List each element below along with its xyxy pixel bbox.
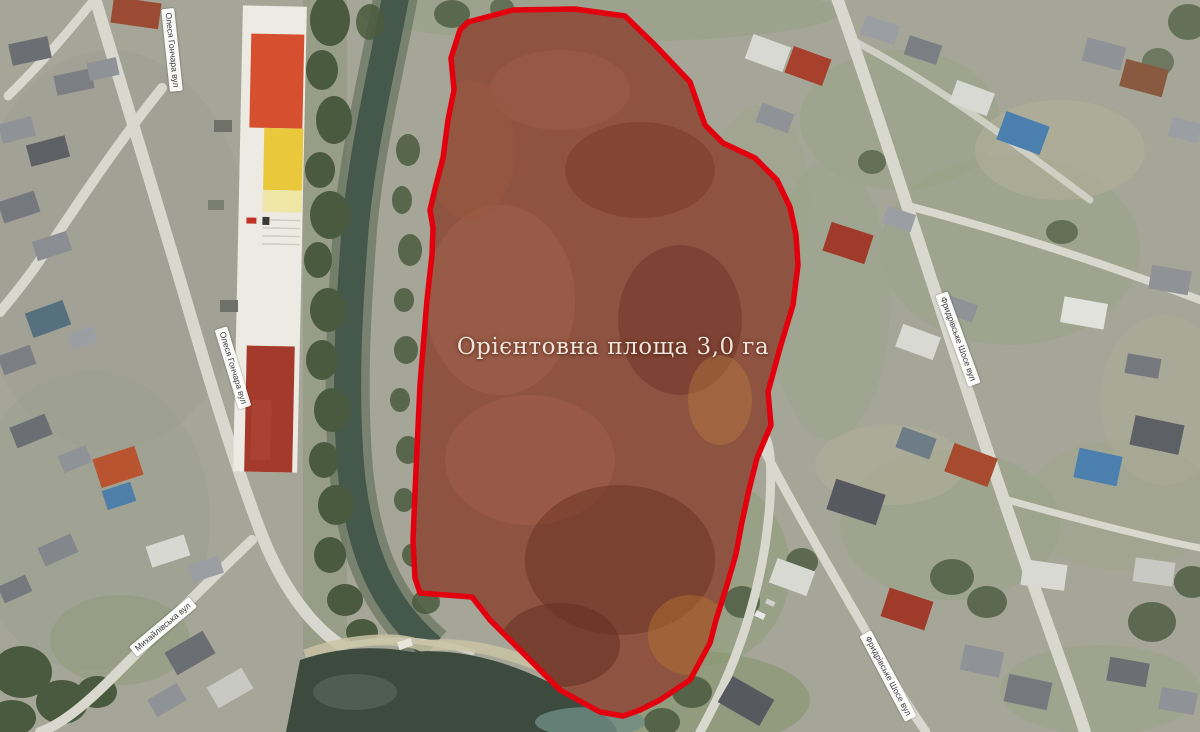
- aerial-imagery: [0, 0, 1200, 732]
- aerial-map-canvas[interactable]: Орієнтовна площа 3,0 га Олеся Гончара ву…: [0, 0, 1200, 732]
- area-annotation-label: Орієнтовна площа 3,0 га: [457, 334, 769, 360]
